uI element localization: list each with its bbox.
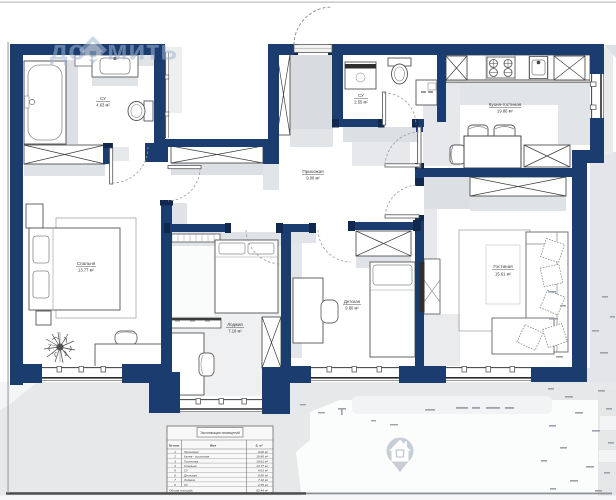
svg-text:7.16 м²: 7.16 м² [228,329,242,334]
svg-text:7: 7 [174,478,176,482]
svg-text:2.55 м²: 2.55 м² [257,483,269,487]
svg-text:Экспликация помещений: Экспликация помещений [200,431,240,435]
svg-text:4: 4 [174,464,176,468]
svg-text:2: 2 [173,455,176,459]
svg-text:№ пом: № пом [169,444,180,448]
svg-text:9.06 м²: 9.06 м² [258,450,269,454]
svg-text:Прихожая: Прихожая [184,450,199,454]
svg-text:13.77 м²: 13.77 м² [78,268,95,273]
svg-text:Детская: Детская [344,299,361,304]
svg-text:5: 5 [174,469,176,473]
svg-text:19.86 м²: 19.86 м² [256,455,269,459]
svg-text:2.55 м²: 2.55 м² [354,100,368,105]
svg-text:8: 8 [174,483,176,487]
svg-text:82.44 м²: 82.44 м² [256,489,269,493]
svg-text:4.63 м²: 4.63 м² [258,469,269,473]
svg-text:6: 6 [174,473,176,477]
svg-text:S, м²: S, м² [255,444,263,448]
svg-text:Спальня: Спальня [77,261,96,266]
svg-text:Имя: Имя [210,444,217,448]
svg-text:Общая площадь: Общая площадь [169,489,193,493]
svg-text:19.86 м²: 19.86 м² [497,109,514,114]
svg-text:Кухня-гостиная: Кухня-гостиная [489,102,522,107]
svg-text:Лоджия: Лоджия [183,478,195,482]
svg-text:1: 1 [174,450,176,454]
svg-text:Детская: Детская [183,473,197,477]
svg-text:7.16 м²: 7.16 м² [258,478,269,482]
svg-text:13.77 м²: 13.77 м² [256,464,269,468]
svg-text:Лоджия: Лоджия [227,322,243,327]
svg-text:Гостиная: Гостиная [493,264,513,269]
svg-text:Прихожая: Прихожая [302,169,324,174]
svg-text:15.61 м²: 15.61 м² [495,272,512,277]
svg-text:Кухня - гостиная: Кухня - гостиная [184,455,209,459]
svg-text:3: 3 [174,459,176,463]
svg-text:Спальня: Спальня [184,464,197,468]
svg-text:15.61 м²: 15.61 м² [256,459,269,463]
svg-text:9.80 м²: 9.80 м² [258,473,269,477]
svg-text:Гостиная: Гостиная [184,459,198,463]
svg-text:4.63 м²: 4.63 м² [96,103,110,108]
svg-text:СУ: СУ [100,96,106,101]
svg-text:мить: мить [107,35,178,66]
svg-text:СУ: СУ [358,93,364,98]
svg-text:9.80 м²: 9.80 м² [345,306,359,311]
svg-text:9.06 м²: 9.06 м² [306,176,320,181]
